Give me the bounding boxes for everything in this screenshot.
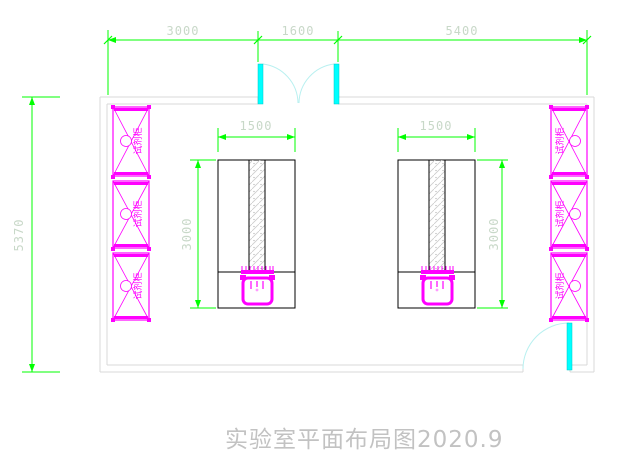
drawing-title: 实验室平面布局图2020.9 <box>225 420 475 454</box>
door-leaf-icon <box>334 64 339 104</box>
door-leaf-icon <box>567 323 572 370</box>
door-swing-arc <box>299 64 334 103</box>
sink-right-icon <box>420 266 455 304</box>
door-swing-arc <box>263 64 298 103</box>
dim-bench-left-depth: 3000 <box>180 204 194 264</box>
cad-floor-plan: 3000 1600 5400 5370 1500 1500 3000 3000 … <box>0 0 619 469</box>
cabinet-label: 试剂柜 <box>133 266 145 306</box>
dim-top-middle: 1600 <box>263 24 333 38</box>
dim-bench-right-width: 1500 <box>401 119 471 133</box>
dim-left-total: 5370 <box>12 205 26 265</box>
dim-bench-left-width: 1500 <box>221 119 291 133</box>
door-swing-arc <box>523 323 569 369</box>
cabinet-label: 试剂柜 <box>133 194 145 234</box>
dim-top-left: 3000 <box>148 24 218 38</box>
cabinet-label: 试剂柜 <box>555 121 567 161</box>
cabinet-label: 试剂柜 <box>555 266 567 306</box>
sink-left-icon <box>240 266 275 304</box>
dim-bench-right-depth: 3000 <box>487 204 501 264</box>
cabinet-column-left <box>111 105 151 322</box>
cabinet-label: 试剂柜 <box>555 194 567 234</box>
floor-plan-drawing <box>0 0 619 469</box>
dim-top-right: 5400 <box>427 24 497 38</box>
room-walls <box>100 97 594 372</box>
bench-hatch-strip <box>429 160 445 272</box>
bench-hatch-strip <box>249 160 265 272</box>
door-leaf-icon <box>258 64 263 104</box>
top-double-door <box>258 64 339 104</box>
cabinet-label: 试剂柜 <box>133 121 145 161</box>
bottom-right-door <box>523 323 572 370</box>
